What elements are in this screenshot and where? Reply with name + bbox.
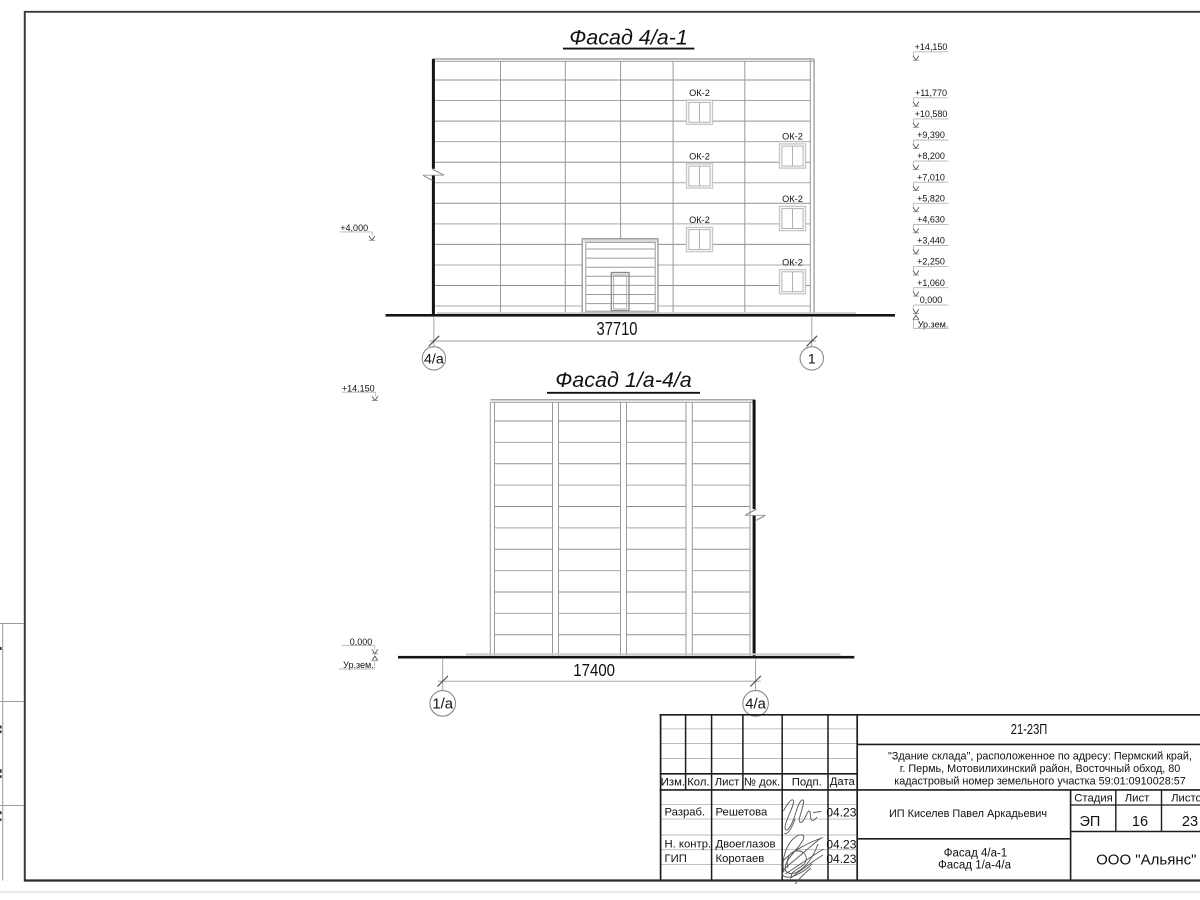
svg-text:Н. контр.: Н. контр. (665, 839, 712, 851)
svg-text:Фасад 1/а-4/а: Фасад 1/а-4/а (555, 368, 692, 392)
svg-text:Ур.зем.: Ур.зем. (343, 660, 374, 670)
svg-text:+14,150: +14,150 (915, 42, 948, 52)
svg-text:Листов: Листов (1171, 793, 1200, 805)
svg-text:№ док.: № док. (744, 777, 780, 789)
svg-text:0,000: 0,000 (920, 295, 943, 305)
svg-text:ОК-2: ОК-2 (782, 132, 803, 142)
svg-text:Дата: Дата (830, 776, 856, 788)
svg-text:4/а: 4/а (745, 697, 766, 713)
svg-text:+1,060: +1,060 (917, 278, 945, 288)
svg-text:4/а: 4/а (424, 351, 444, 367)
svg-text:21-23П: 21-23П (1011, 722, 1048, 738)
svg-text:+7,010: +7,010 (917, 172, 945, 182)
svg-text:ЭП: ЭП (1079, 814, 1100, 830)
svg-text:+2,250: +2,250 (917, 257, 945, 267)
svg-text:"Здание склада", расположенное: "Здание склада", расположенное по адресу… (888, 750, 1192, 762)
svg-text:ОК-2: ОК-2 (689, 215, 710, 225)
svg-text:+8,200: +8,200 (917, 151, 945, 161)
svg-text:Разраб.: Разраб. (665, 807, 706, 819)
svg-text:Двоеглазов: Двоеглазов (716, 839, 776, 851)
svg-text:Изм.: Изм. (661, 777, 685, 789)
svg-text:Коротаев: Коротаев (716, 853, 765, 865)
svg-text:Подп.: Подп. (792, 776, 822, 788)
svg-text:ИП Киселев Павел Аркадьевич: ИП Киселев Павел Аркадьевич (889, 808, 1047, 820)
svg-text:1/а: 1/а (432, 697, 453, 713)
svg-text:+11,770: +11,770 (915, 88, 947, 98)
svg-text:Решетова: Решетова (716, 807, 768, 819)
svg-text:04.23: 04.23 (826, 852, 856, 866)
svg-text:23: 23 (1182, 814, 1198, 830)
svg-text:Лист: Лист (1125, 793, 1150, 805)
svg-text:ОК-2: ОК-2 (782, 257, 803, 267)
svg-text:1: 1 (808, 351, 816, 367)
svg-text:Фасад 4/а-1: Фасад 4/а-1 (569, 26, 688, 50)
svg-text:Стадия: Стадия (1074, 793, 1113, 805)
svg-text:ГИП: ГИП (665, 853, 687, 865)
svg-text:ОК-2: ОК-2 (689, 88, 710, 98)
svg-text:04.23: 04.23 (826, 805, 856, 819)
svg-text:ОК-2: ОК-2 (689, 152, 710, 162)
svg-text:Ур.зем.: Ур.зем. (918, 320, 949, 330)
svg-text:04.23: 04.23 (826, 837, 856, 851)
svg-text:+5,820: +5,820 (917, 193, 945, 203)
svg-text:+4,630: +4,630 (917, 215, 945, 225)
svg-text:16: 16 (1132, 814, 1148, 830)
svg-text:ООО "Альянс": ООО "Альянс" (1096, 851, 1196, 868)
svg-text:+9,390: +9,390 (917, 130, 945, 140)
svg-text:17400: 17400 (573, 660, 615, 680)
svg-text:г. Пермь, Мотовилихинский райо: г. Пермь, Мотовилихинский район, Восточн… (900, 763, 1181, 775)
svg-text:Лист: Лист (715, 777, 740, 789)
svg-text:Фасад 4/а-1: Фасад 4/а-1 (944, 848, 1007, 860)
svg-text:Кол.: Кол. (687, 777, 709, 789)
svg-text:ОК-2: ОК-2 (782, 194, 803, 204)
svg-text:+10,580: +10,580 (915, 109, 948, 119)
svg-text:+3,440: +3,440 (917, 236, 945, 246)
svg-text:37710: 37710 (597, 318, 638, 339)
svg-text:кадастровый номер земельного у: кадастровый номер земельного участка 59:… (894, 775, 1185, 787)
svg-text:Фасад 1/а-4/а: Фасад 1/а-4/а (938, 860, 1012, 872)
